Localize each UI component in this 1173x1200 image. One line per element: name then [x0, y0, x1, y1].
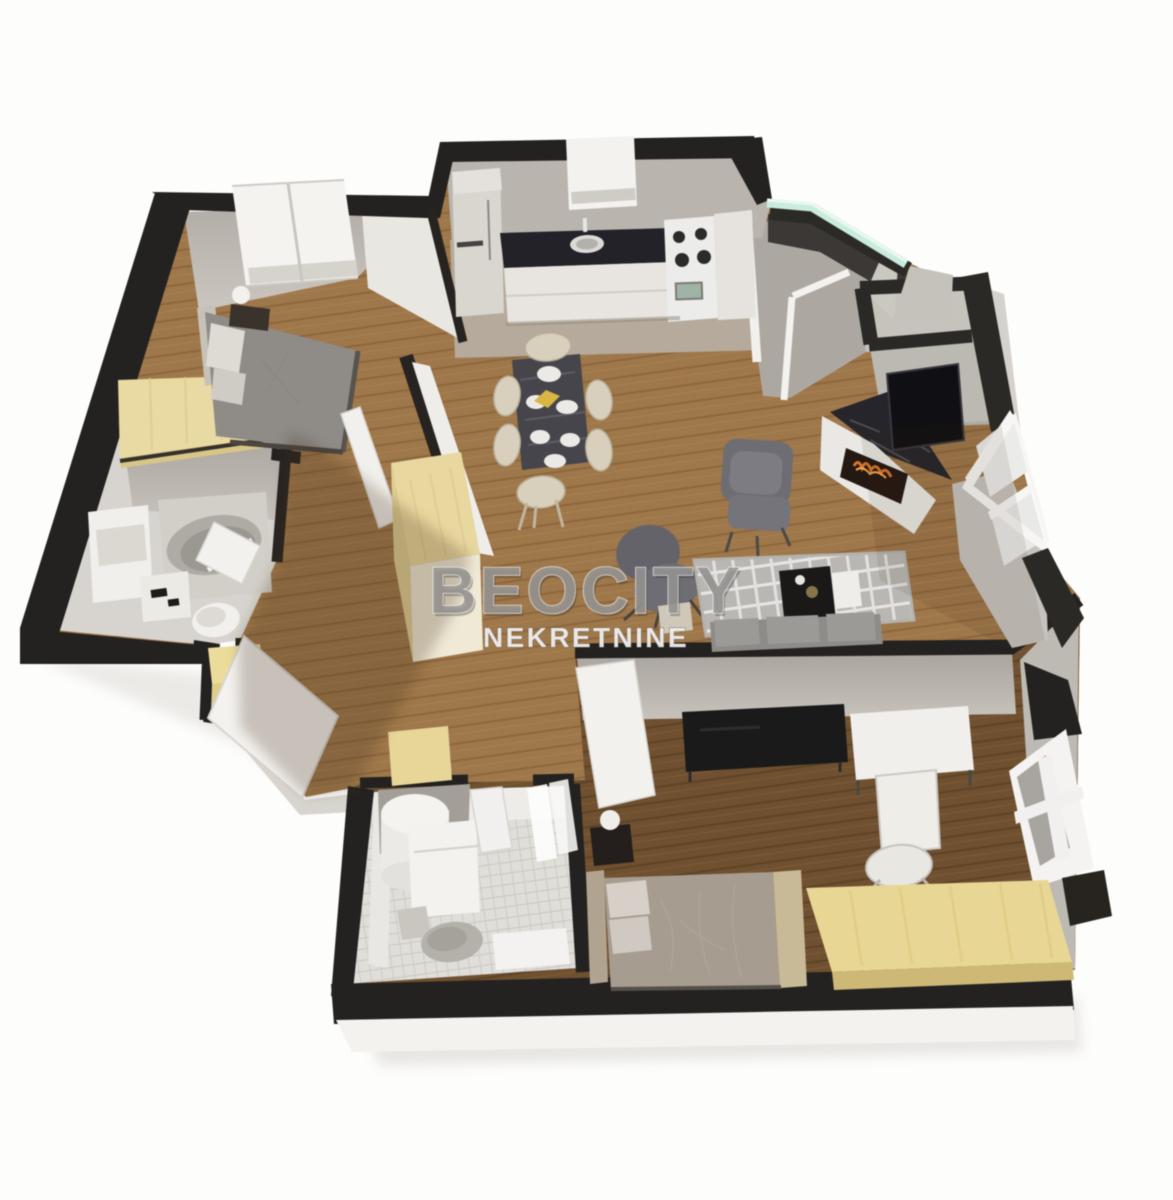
svg-text:BEOCITY: BEOCITY — [429, 553, 743, 627]
svg-text:NEKRETNINE: NEKRETNINE — [483, 622, 689, 653]
